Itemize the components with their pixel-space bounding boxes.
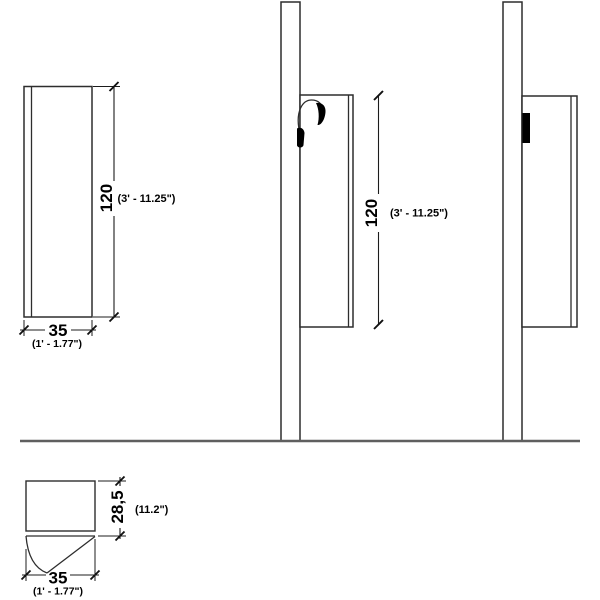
side-view-middle: 120 (3' - 11.25") (281, 2, 448, 441)
drawing-canvas: 120 (3' - 11.25") 35 (1' - 1.77") (0, 0, 600, 600)
front-width-value: 35 (49, 321, 68, 340)
plan-width-dimension: 35 (1' - 1.77") (22, 539, 100, 598)
plan-depth-imperial: (11.2") (135, 504, 169, 516)
side-view-right (503, 2, 577, 441)
plan-width-imperial: (1' - 1.77") (33, 586, 83, 598)
plan-width-value: 35 (49, 568, 68, 587)
hook-base (297, 128, 305, 148)
side-panel-body (522, 96, 577, 327)
front-view: 120 (3' - 11.25") 35 (1' - 1.77") (20, 82, 176, 350)
side-height-value: 120 (362, 199, 381, 227)
plan-view: 28,5 (11.2") 35 (1' - 1.77") (22, 477, 169, 598)
plan-body-outline (26, 481, 95, 531)
technical-drawing-page: 120 (3' - 11.25") 35 (1' - 1.77") (0, 0, 600, 600)
front-panel-outline (24, 87, 92, 318)
mounting-post (281, 2, 300, 441)
plan-depth-value: 28,5 (108, 490, 127, 523)
front-height-value: 120 (97, 184, 116, 212)
side-height-imperial: (3' - 11.25") (390, 207, 448, 219)
mounting-bracket-icon (523, 113, 531, 143)
side-panel-body (300, 95, 353, 327)
front-height-imperial: (3' - 11.25") (118, 193, 176, 205)
plan-depth-dimension: 28,5 (11.2") (98, 477, 169, 541)
front-width-imperial: (1' - 1.77") (32, 338, 82, 350)
side-height-dimension: 120 (3' - 11.25") (362, 91, 448, 329)
door-swing-arc (26, 536, 47, 573)
front-height-dimension: 120 (3' - 11.25") (93, 82, 176, 322)
mounting-post (503, 2, 522, 441)
front-width-dimension: 35 (1' - 1.77") (20, 320, 97, 350)
